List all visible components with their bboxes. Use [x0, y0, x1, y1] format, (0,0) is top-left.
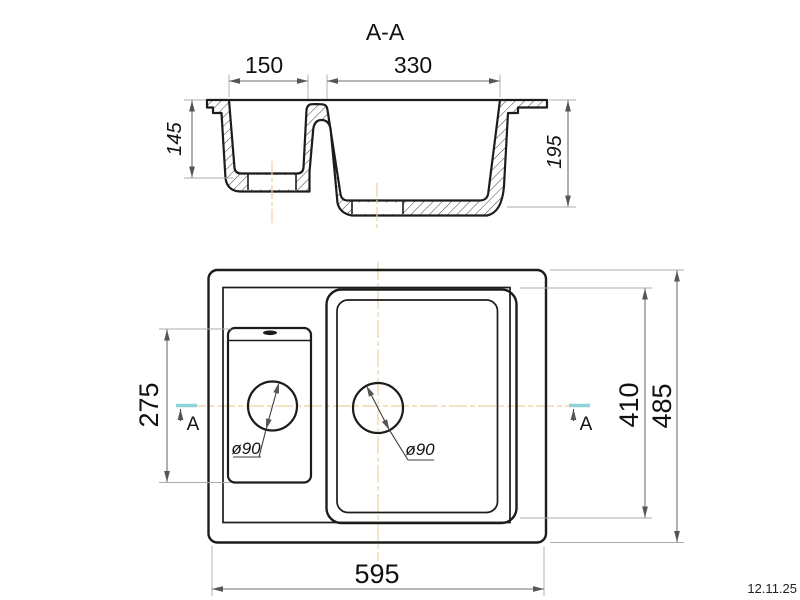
date-note: 12.11.25 — [747, 581, 797, 596]
dim-small-bowl-depth-label: 145 — [164, 121, 186, 155]
section-view: A-A 150 330 145 195 — [164, 19, 576, 230]
dim-overall-width-label: 595 — [354, 559, 399, 589]
sink-technical-drawing-page: A-A 150 330 145 195 ø90 ø — [0, 0, 800, 600]
dim-small-bowl-width-label: 150 — [245, 52, 283, 78]
bowl-area-outline — [223, 288, 510, 523]
section-title: A-A — [366, 19, 405, 45]
dim-small-bowl-length-label: 275 — [134, 382, 164, 427]
small-bowl-edge — [228, 328, 311, 483]
drain-diameter-right-label: ø90 — [405, 440, 435, 459]
section-cut-profile — [207, 100, 547, 216]
section-marker-left: A — [176, 406, 200, 436]
sink-technical-drawing: A-A 150 330 145 195 ø90 ø — [0, 0, 800, 600]
plan-dimension-lines — [167, 271, 677, 590]
overflow-slot — [263, 331, 277, 336]
plan-view: ø90 ø90 595 485 410 275 A — [134, 262, 684, 596]
drain-diameter-left-label: ø90 — [231, 439, 261, 458]
dim-large-bowl-depth-label: 195 — [544, 134, 566, 168]
section-marker-right: A — [569, 406, 593, 436]
section-marker-letter-left: A — [187, 414, 200, 435]
dim-overall-depth-label: 485 — [647, 383, 677, 428]
section-marker-letter-right: A — [580, 414, 593, 435]
dim-large-bowl-width-label: 330 — [394, 52, 432, 78]
plan-extension-lines — [159, 270, 684, 596]
dim-bowl-area-depth-label: 410 — [614, 382, 644, 427]
